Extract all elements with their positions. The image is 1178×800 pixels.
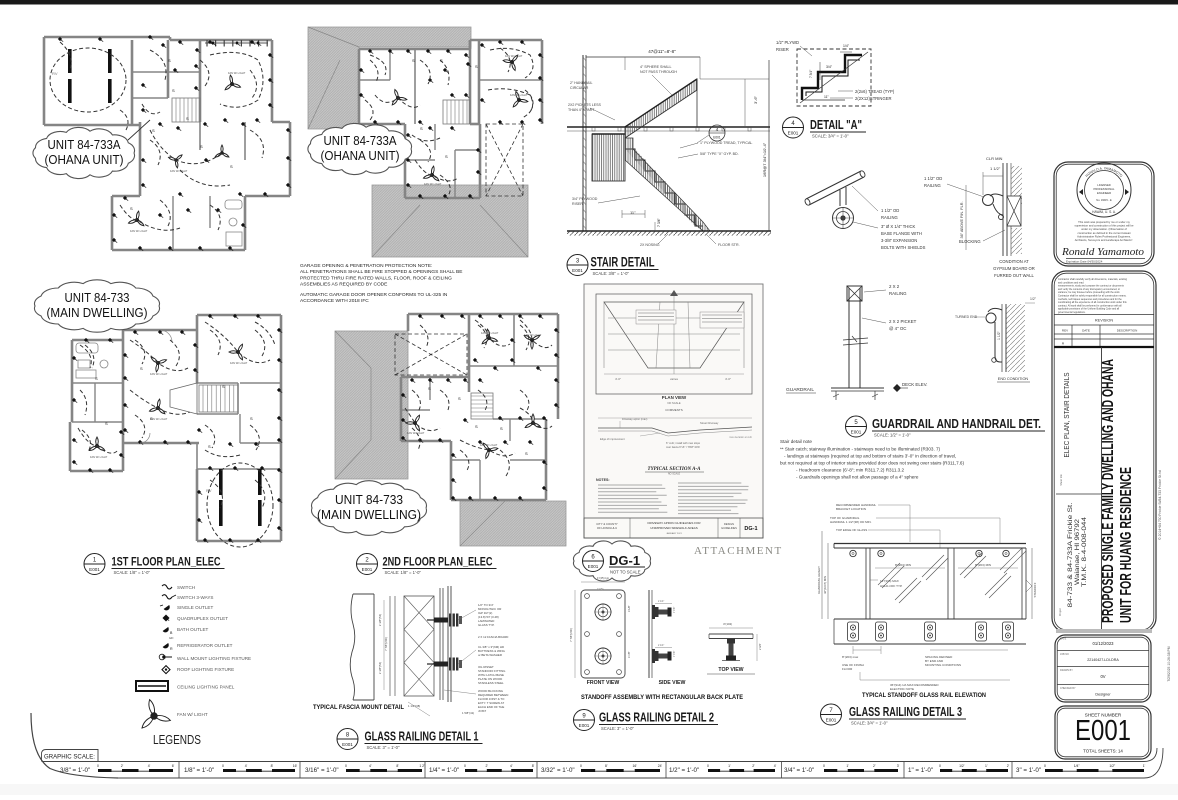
svg-text:1': 1' bbox=[985, 764, 988, 768]
svg-text:2" HANDRAIL: 2" HANDRAIL bbox=[570, 81, 592, 85]
svg-text:under my observation. (Obser: under my observation. (Observation of bbox=[1081, 227, 1127, 231]
svg-text:4': 4' bbox=[245, 764, 248, 768]
svg-text:Designer: Designer bbox=[1095, 693, 1111, 697]
svg-text:PROPOSED SINGLE FAMILY DWELLIN: PROPOSED SINGLE FAMILY DWELLING AND OHAN… bbox=[1100, 359, 1117, 623]
svg-text:0: 0 bbox=[222, 764, 224, 768]
svg-text:Sheet title: Sheet title bbox=[1059, 474, 1063, 486]
svg-text:S: S bbox=[172, 88, 175, 93]
svg-text:ASSEMBLIES AS REQUIRED BY CODE: ASSEMBLIES AS REQUIRED BY CODE bbox=[300, 282, 387, 288]
svg-text:UNIT 84-733A: UNIT 84-733A bbox=[324, 133, 397, 148]
svg-text:12"(305) MAX: 12"(305) MAX bbox=[880, 579, 899, 583]
svg-text:1/2": 1/2" bbox=[1030, 297, 1037, 301]
svg-text:2 1/8"(54): 2 1/8"(54) bbox=[378, 614, 382, 626]
svg-text:S: S bbox=[445, 154, 448, 159]
svg-text:GLASS RAILING DETAIL 2: GLASS RAILING DETAIL 2 bbox=[599, 711, 714, 725]
svg-text:DESIGN: DESIGN bbox=[724, 522, 734, 526]
svg-text:E001: E001 bbox=[342, 742, 353, 747]
svg-text:8': 8' bbox=[532, 764, 535, 768]
svg-text:R: R bbox=[170, 647, 173, 651]
svg-text:7 7/8": 7 7/8" bbox=[673, 607, 676, 613]
svg-text:S: S bbox=[420, 126, 423, 131]
svg-text:FAN W/ LIGHT: FAN W/ LIGHT bbox=[228, 71, 246, 75]
svg-text:AUTOMATIC GARAGE DOOR OPENER C: AUTOMATIC GARAGE DOOR OPENER CONFORMS TO… bbox=[300, 292, 448, 298]
svg-text:S: S bbox=[105, 421, 108, 426]
svg-text:0: 0 bbox=[939, 764, 941, 768]
svg-text:GLASS RAILING DETAIL 1: GLASS RAILING DETAIL 1 bbox=[365, 730, 479, 744]
svg-text:S: S bbox=[475, 424, 478, 429]
svg-text:ATTACHMENT: ATTACHMENT bbox=[694, 545, 783, 557]
svg-text:END CONDITION: END CONDITION bbox=[998, 377, 1029, 381]
svg-text:FAN W/ LIGHT: FAN W/ LIGHT bbox=[481, 331, 499, 335]
svg-text:1"(25) typ: 1"(25) typ bbox=[597, 576, 609, 580]
svg-text:DG-1: DG-1 bbox=[744, 526, 757, 532]
svg-text:E001: E001 bbox=[588, 564, 599, 569]
svg-text:FAN W/ LIGHT: FAN W/ LIGHT bbox=[407, 431, 425, 435]
svg-text:@ 4" OC: @ 4" OC bbox=[889, 326, 906, 331]
svg-text:GUIDELINES: GUIDELINES bbox=[721, 526, 737, 530]
svg-text:2 1/8"(54): 2 1/8"(54) bbox=[378, 662, 382, 674]
svg-text:GFI: GFI bbox=[169, 636, 174, 640]
svg-text:S: S bbox=[186, 116, 189, 121]
svg-text:CONDITION AT: CONDITION AT bbox=[999, 259, 1029, 264]
svg-text:3/32" = 1'-0": 3/32" = 1'-0" bbox=[541, 767, 575, 774]
svg-text:COMMENTS: COMMENTS bbox=[665, 408, 683, 412]
svg-text:E001: E001 bbox=[826, 718, 837, 723]
svg-text:SCALE: 1/8" = 1'-0": SCALE: 1/8" = 1'-0" bbox=[385, 570, 422, 575]
svg-text:S: S bbox=[95, 376, 98, 381]
svg-text:over fascia 6"x6" / "8X8" R/W: over fascia 6"x6" / "8X8" R/W bbox=[666, 445, 700, 449]
svg-text:4': 4' bbox=[774, 764, 777, 768]
svg-text:TURNED END: TURNED END bbox=[955, 315, 978, 319]
svg-text:47@11"=8'-8": 47@11"=8'-8" bbox=[648, 49, 676, 54]
svg-text:max deviation at curb: max deviation at curb bbox=[729, 436, 752, 439]
svg-text:FLOOR: FLOOR bbox=[842, 667, 853, 671]
svg-text:3 7/8": 3 7/8" bbox=[627, 651, 631, 658]
svg-text:- landings at stairways (requi: - landings at stairways (required at top… bbox=[784, 454, 956, 459]
svg-text:NO SCALE: NO SCALE bbox=[668, 473, 680, 476]
svg-text:1 1/2" OD: 1 1/2" OD bbox=[924, 176, 942, 181]
svg-text:2X NOSING: 2X NOSING bbox=[640, 243, 660, 247]
svg-text:2ND FLOOR PLAN_ELEC: 2ND FLOOR PLAN_ELEC bbox=[383, 555, 493, 569]
svg-text:3/4" = 1'-0": 3/4" = 1'-0" bbox=[784, 767, 814, 774]
svg-text:BRACKET LOCATION: BRACKET LOCATION bbox=[836, 507, 866, 511]
svg-text:- Guardrails openings shall no: - Guardrails openings shall not allow pa… bbox=[796, 475, 919, 480]
svg-text:** Stair catch; stairway illum: ** Stair catch; stairway illumination - … bbox=[780, 447, 941, 452]
svg-text:16R@7 3/4"=10'-4": 16R@7 3/4"=10'-4" bbox=[762, 142, 767, 177]
svg-text:S: S bbox=[250, 416, 253, 421]
svg-text:Stair detail note: Stair detail note bbox=[780, 439, 812, 444]
svg-text:3-3/8" EXPANSION: 3-3/8" EXPANSION bbox=[881, 238, 917, 243]
svg-text:3/16" = 1'-0": 3/16" = 1'-0" bbox=[305, 767, 339, 774]
svg-text:UNIT FOR HUANG RESIDENCE: UNIT FOR HUANG RESIDENCE bbox=[1118, 467, 1135, 623]
svg-text:Expiration Date 04/30/2024: Expiration Date 04/30/2024 bbox=[1066, 260, 1103, 264]
svg-text:2': 2' bbox=[485, 764, 488, 768]
svg-text:4': 4' bbox=[369, 764, 372, 768]
svg-text:LEGENDS: LEGENDS bbox=[153, 732, 201, 747]
svg-text:UNIT 84-733: UNIT 84-733 bbox=[65, 290, 130, 305]
svg-text:STAINLESS STEEL: STAINLESS STEEL bbox=[478, 681, 504, 685]
svg-text:E001: E001 bbox=[851, 430, 862, 435]
svg-text:CLR MIN: CLR MIN bbox=[986, 156, 1003, 161]
svg-text:GARAGE OPENING & PENETRATION P: GARAGE OPENING & PENETRATION PROTECTION … bbox=[300, 263, 432, 269]
svg-text:16': 16' bbox=[633, 764, 638, 768]
svg-text:8"(203) max: 8"(203) max bbox=[842, 655, 859, 659]
svg-text:S: S bbox=[525, 451, 528, 456]
svg-text:5/8" TYPE "X" GYP. BD.: 5/8" TYPE "X" GYP. BD. bbox=[700, 152, 739, 156]
svg-text:1 1/2" OD: 1 1/2" OD bbox=[881, 208, 899, 213]
svg-text:NOT PASS THROUGH: NOT PASS THROUGH bbox=[640, 70, 677, 74]
svg-text:8"(203) MIN: 8"(203) MIN bbox=[975, 563, 991, 567]
svg-text:E001: E001 bbox=[713, 136, 721, 140]
svg-text:RAILING: RAILING bbox=[889, 291, 907, 296]
svg-text:WALL MOUNT LIGHTING FIXTURE: WALL MOUNT LIGHTING FIXTURE bbox=[177, 656, 251, 661]
svg-text:8': 8' bbox=[396, 764, 399, 768]
svg-text:UNIMPROVED SIDEWALK AREAS: UNIMPROVED SIDEWALK AREAS bbox=[650, 526, 697, 530]
svg-text:GLASS RAILING DETAIL 3: GLASS RAILING DETAIL 3 bbox=[849, 705, 962, 719]
svg-text:S: S bbox=[200, 144, 203, 149]
svg-text:3': 3' bbox=[897, 764, 900, 768]
svg-text:STANDOFF: STANDOFF bbox=[1033, 582, 1037, 597]
svg-text:ENGINEER: ENGINEER bbox=[1097, 191, 1111, 195]
svg-text:FURRED OUT WALL: FURRED OUT WALL bbox=[994, 273, 1034, 278]
svg-text:SCALE: 3/8" = 1'-0": SCALE: 3/8" = 1'-0" bbox=[593, 271, 630, 276]
svg-text:DATE: DATE bbox=[1082, 329, 1090, 333]
svg-text:BLOCKING: BLOCKING bbox=[959, 239, 981, 244]
svg-text:UNIT 84-733: UNIT 84-733 bbox=[335, 492, 403, 507]
svg-text:S: S bbox=[168, 58, 171, 63]
svg-text:0: 0 bbox=[707, 764, 709, 768]
svg-text:Ronald Yamamoto: Ronald Yamamoto bbox=[1061, 247, 1144, 258]
svg-text:FAN W/ LIGHT: FAN W/ LIGHT bbox=[90, 455, 108, 459]
svg-text:DRAWN BY: DRAWN BY bbox=[1060, 669, 1073, 672]
svg-text:Project: Project bbox=[1058, 608, 1062, 616]
svg-text:E001: E001 bbox=[788, 131, 799, 136]
svg-text:TYPICAL SECTION A-A: TYPICAL SECTION A-A bbox=[648, 467, 702, 472]
svg-text:Street Driveway: Street Driveway bbox=[700, 421, 719, 425]
svg-text:1/2": 1/2" bbox=[1109, 764, 1116, 768]
svg-text:TOP VIEW: TOP VIEW bbox=[718, 667, 743, 673]
svg-text:2X2 PICKETS LESS: 2X2 PICKETS LESS bbox=[568, 103, 602, 107]
svg-text:2(2x6) TREAD (TYP): 2(2x6) TREAD (TYP) bbox=[855, 89, 895, 94]
svg-text:2': 2' bbox=[873, 764, 876, 768]
svg-text:SWITCH 3-WAYS: SWITCH 3-WAYS bbox=[177, 595, 214, 600]
svg-text:SCALE: 1/8" = 1'-0": SCALE: 1/8" = 1'-0" bbox=[114, 570, 151, 575]
svg-text:S: S bbox=[458, 396, 461, 401]
svg-text:RV: RV bbox=[52, 71, 58, 76]
svg-text:GLASS TYP.: GLASS TYP. bbox=[478, 623, 495, 627]
svg-text:REVISION: REVISION bbox=[1095, 319, 1113, 323]
svg-text:3" = 1'-0": 3" = 1'-0" bbox=[1016, 767, 1041, 774]
svg-text:NOTES:: NOTES: bbox=[596, 478, 610, 482]
svg-text:FRONT VIEW: FRONT VIEW bbox=[587, 680, 620, 686]
svg-text:JOB NO: JOB NO bbox=[1060, 653, 1069, 656]
svg-text:S: S bbox=[412, 58, 415, 63]
svg-text:STANDOFF ASSEMBLY WITH RECTANG: STANDOFF ASSEMBLY WITH RECTANGULAR BACK … bbox=[581, 694, 743, 701]
svg-text:1"(25): 1"(25) bbox=[597, 588, 604, 591]
svg-text:FAN W/ LIGHT: FAN W/ LIGHT bbox=[480, 443, 498, 447]
svg-text:GUARDRAIL: GUARDRAIL bbox=[786, 387, 814, 393]
svg-text:24': 24' bbox=[658, 764, 663, 768]
svg-text:0: 0 bbox=[97, 764, 99, 768]
svg-text:2': 2' bbox=[1007, 764, 1010, 768]
svg-text:4" SPHERE SHALL: 4" SPHERE SHALL bbox=[640, 65, 671, 69]
svg-text:FAN W/ LIGHT: FAN W/ LIGHT bbox=[150, 417, 168, 421]
svg-text:2 1/4": 2 1/4" bbox=[658, 600, 664, 603]
svg-text:QUADRUPLEX OUTLET: QUADRUPLEX OUTLET bbox=[177, 616, 228, 621]
svg-text:- Headroom clearance (6'-8"; m: - Headroom clearance (6'-8"; min R311.7.… bbox=[796, 468, 904, 473]
svg-text:DESCRIPTION: DESCRIPTION bbox=[1117, 329, 1138, 333]
svg-text:BATH OUTLET: BATH OUTLET bbox=[177, 627, 209, 632]
svg-text:16': 16' bbox=[293, 764, 298, 768]
svg-text:or BETA WASHER: or BETA WASHER bbox=[478, 653, 502, 657]
svg-text:8': 8' bbox=[605, 764, 608, 768]
svg-text:22140427-LDI-DRA: 22140427-LDI-DRA bbox=[1087, 658, 1119, 662]
svg-text:3/8" = 1'-0": 3/8" = 1'-0" bbox=[60, 767, 90, 774]
svg-text:0: 0 bbox=[823, 764, 825, 768]
svg-text:FAN W/ LIGHT: FAN W/ LIGHT bbox=[230, 361, 248, 365]
svg-text:0: 0 bbox=[580, 764, 582, 768]
svg-text:SINGLE OUTLET: SINGLE OUTLET bbox=[177, 605, 213, 610]
svg-text:1/4": 1/4" bbox=[843, 44, 850, 48]
svg-text:S: S bbox=[222, 384, 225, 389]
svg-text:0: 0 bbox=[1044, 764, 1046, 768]
svg-text:6': 6' bbox=[172, 764, 175, 768]
svg-text:RISER: RISER bbox=[776, 47, 789, 52]
svg-text:E001: E001 bbox=[579, 723, 590, 728]
svg-text:11": 11" bbox=[824, 95, 830, 99]
svg-text:FAN W/ LIGHT: FAN W/ LIGHT bbox=[524, 333, 542, 337]
svg-text:7 7/8"(200): 7 7/8"(200) bbox=[384, 637, 388, 651]
svg-text:E001: E001 bbox=[1075, 715, 1131, 747]
svg-text:TOTAL SHEETS: 14: TOTAL SHEETS: 14 bbox=[1083, 749, 1123, 754]
svg-text:2': 2' bbox=[121, 764, 124, 768]
svg-text:UNIT 84-733A: UNIT 84-733A bbox=[48, 137, 121, 152]
svg-text:1ST FLOOR PLAN_ELEC: 1ST FLOOR PLAN_ELEC bbox=[112, 555, 221, 569]
svg-text:S: S bbox=[440, 58, 443, 63]
svg-text:SCALE: 3/4" = 1'-0": SCALE: 3/4" = 1'-0" bbox=[851, 721, 888, 726]
svg-text:CEILING LIGHTING PANEL: CEILING LIGHTING PANEL bbox=[177, 685, 235, 690]
svg-text:JOIST: JOIST bbox=[478, 709, 486, 713]
svg-text:ALL PENETRATIONS SHALL BE FIRE: ALL PENETRATIONS SHALL BE FIRE STOPPED &… bbox=[300, 269, 462, 275]
svg-text:2 X 12 FASCIA BOARD: 2 X 12 FASCIA BOARD bbox=[478, 635, 508, 639]
svg-text:E001: E001 bbox=[572, 268, 583, 273]
svg-text:2': 2' bbox=[752, 764, 755, 768]
svg-text:FAN W/ LIGHT: FAN W/ LIGHT bbox=[424, 182, 442, 186]
svg-text:PROFESSIONAL: PROFESSIONAL bbox=[1094, 187, 1115, 191]
svg-text:FAN W/ LIGHT: FAN W/ LIGHT bbox=[170, 169, 188, 173]
svg-text:8"(203) MIN: 8"(203) MIN bbox=[895, 563, 911, 567]
svg-text:TYPICAL FASCIA MOUNT DETAIL: TYPICAL FASCIA MOUNT DETAIL bbox=[313, 704, 404, 711]
svg-text:SCALE: 1/2" = 1'-0": SCALE: 1/2" = 1'-0" bbox=[874, 433, 911, 438]
svg-text:1/2': 1/2' bbox=[959, 764, 965, 768]
svg-text:SWITCH: SWITCH bbox=[177, 585, 195, 590]
svg-text:1/2" = 1'-0": 1/2" = 1'-0" bbox=[669, 767, 699, 774]
svg-text:STAIR DETAIL: STAIR DETAIL bbox=[591, 255, 655, 270]
svg-text:1 1/2"(38): 1 1/2"(38) bbox=[408, 704, 420, 708]
svg-text:7 7/8": 7 7/8" bbox=[673, 651, 676, 657]
svg-text:OF HONOLULU: OF HONOLULU bbox=[597, 526, 617, 530]
svg-text:1 1/2": 1 1/2" bbox=[990, 166, 1001, 171]
svg-text:S: S bbox=[500, 426, 503, 431]
svg-text:SIDE VIEW: SIDE VIEW bbox=[659, 680, 686, 686]
svg-text:FAN W/ LIGHT: FAN W/ LIGHT bbox=[150, 372, 168, 376]
svg-text:TOP EDGE OF GLASS: TOP EDGE OF GLASS bbox=[836, 528, 867, 532]
svg-text:PLAN VIEW: PLAN VIEW bbox=[662, 395, 687, 400]
svg-text:E001: E001 bbox=[362, 567, 373, 572]
svg-text:8': 8' bbox=[271, 764, 274, 768]
svg-text:42"(1067) MIN: 42"(1067) MIN bbox=[823, 576, 827, 594]
svg-text:4'-0": 4'-0" bbox=[615, 377, 621, 381]
svg-text:MOUNTING CONDITIONS: MOUNTING CONDITIONS bbox=[925, 663, 961, 667]
svg-text:GUARDRAIL HEIGHT: GUARDRAIL HEIGHT bbox=[817, 566, 821, 594]
svg-text:7/29/2025 10:26:38 PM: 7/29/2025 10:26:38 PM bbox=[1167, 646, 1171, 681]
svg-text:3" Ø X 1/4" THICK: 3" Ø X 1/4" THICK bbox=[881, 224, 916, 229]
svg-text:CHECKED BY: CHECKED BY bbox=[1060, 687, 1076, 690]
svg-text:DG-1: DG-1 bbox=[609, 553, 640, 568]
svg-text:RAILING: RAILING bbox=[881, 215, 898, 220]
svg-text:supervision and construction o: supervision and construction of this pro… bbox=[1074, 224, 1134, 228]
svg-text:DRIVEWAY APRON GUIDELINES FOR: DRIVEWAY APRON GUIDELINES FOR bbox=[647, 521, 701, 525]
svg-text:DECK ELEV.: DECK ELEV. bbox=[902, 382, 927, 387]
svg-text:S: S bbox=[140, 366, 143, 371]
svg-text:1': 1' bbox=[728, 764, 731, 768]
svg-text:REFRIGERATOR OUTLET: REFRIGERATOR OUTLET bbox=[177, 643, 233, 648]
svg-text:(OHANA UNIT): (OHANA UNIT) bbox=[321, 148, 400, 163]
svg-text:Edge of improvement: Edge of improvement bbox=[600, 437, 625, 441]
svg-text:ELECTRIC NOTE: ELECTRIC NOTE bbox=[890, 687, 914, 691]
svg-text:E001: E001 bbox=[89, 567, 100, 572]
svg-text:construction as defined in the: construction as defined in the current H… bbox=[1078, 231, 1131, 235]
svg-text:Waianae, HI 96792: Waianae, HI 96792 bbox=[1075, 518, 1081, 585]
svg-text:TYPICAL STANDOFF GLASS RAIL EL: TYPICAL STANDOFF GLASS RAIL ELEVATION bbox=[862, 692, 986, 699]
svg-text:This work was prepared by me o: This work was prepared by me or under my bbox=[1078, 220, 1130, 224]
svg-text:S: S bbox=[230, 164, 233, 169]
svg-text:SCALE: 3/4" = 1'-0": SCALE: 3/4" = 1'-0" bbox=[812, 134, 849, 139]
svg-text:HOLD-OFF TYP.: HOLD-OFF TYP. bbox=[880, 584, 903, 588]
svg-text:4'-0": 4'-0" bbox=[725, 377, 731, 381]
svg-text:36" ABOVE FIN. FLR.: 36" ABOVE FIN. FLR. bbox=[960, 201, 964, 238]
svg-text:1': 1' bbox=[846, 764, 849, 768]
svg-text:4"(102): 4"(102) bbox=[723, 622, 732, 626]
svg-text:HANDRAIL 1 1/2"(38) OD MIN.: HANDRAIL 1 1/2"(38) OD MIN. bbox=[830, 520, 872, 524]
svg-text:3/4": 3/4" bbox=[826, 65, 833, 69]
svg-text:3'-6": 3'-6" bbox=[753, 95, 758, 104]
svg-text:3/4" PLYWOOD: 3/4" PLYWOOD bbox=[572, 197, 598, 201]
svg-text:S: S bbox=[208, 444, 211, 449]
svg-text:varies: varies bbox=[670, 377, 679, 381]
svg-text:NO SCALE: NO SCALE bbox=[667, 401, 680, 405]
svg-text:1/4" = 1'-0": 1/4" = 1'-0" bbox=[429, 767, 459, 774]
svg-text:6" curb; install with max slop: 6" curb; install with max slope bbox=[666, 441, 701, 445]
svg-text:DATE: DATE bbox=[1060, 638, 1067, 641]
svg-text:1" PLYWOOD TREAD, TYPICAL: 1" PLYWOOD TREAD, TYPICAL bbox=[700, 141, 752, 145]
svg-text:2 3/4": 2 3/4" bbox=[758, 643, 762, 650]
svg-text:7 7/8"(200): 7 7/8"(200) bbox=[569, 628, 573, 642]
svg-text:1/4": 1/4" bbox=[1074, 764, 1081, 768]
svg-text:FLOOR STR.: FLOOR STR. bbox=[718, 243, 740, 247]
svg-text:REV: REV bbox=[1062, 329, 1068, 333]
svg-text:ACCORDANCE WITH 2018 IFC: ACCORDANCE WITH 2018 IFC bbox=[300, 298, 369, 304]
svg-text:S: S bbox=[130, 206, 133, 211]
svg-text:SCALE: 3" = 1'-0": SCALE: 3" = 1'-0" bbox=[601, 726, 634, 731]
svg-text:ROOF LIGHTING FIXTURE: ROOF LIGHTING FIXTURE bbox=[177, 667, 234, 672]
svg-text:Architects, Surveyors and Land: Architects, Surveyors and Landscape Arch… bbox=[1075, 238, 1134, 242]
svg-text:FAN W/ LIGHT: FAN W/ LIGHT bbox=[177, 712, 208, 717]
svg-text:FAN W/ LIGHT: FAN W/ LIGHT bbox=[510, 93, 528, 97]
svg-text:2 1/4": 2 1/4" bbox=[658, 644, 664, 647]
svg-text:SCALE: 3" = 1'-0": SCALE: 3" = 1'-0" bbox=[367, 745, 400, 750]
svg-text:BOLTS WITH SHIELDS: BOLTS WITH SHIELDS bbox=[881, 245, 926, 250]
svg-text:governmental regulations.: governmental regulations. bbox=[1058, 311, 1086, 314]
svg-text:GYPSUM BOARD OR: GYPSUM BOARD OR bbox=[993, 266, 1035, 271]
svg-text:1 1/2": 1 1/2" bbox=[997, 330, 1001, 340]
svg-text:JANUARY 2021: JANUARY 2021 bbox=[666, 532, 682, 535]
svg-text:LICENSED: LICENSED bbox=[1097, 183, 1111, 187]
svg-text:No. 16615 - E: No. 16615 - E bbox=[1096, 199, 1112, 202]
svg-text:1" = 1'-0": 1" = 1'-0" bbox=[908, 767, 933, 774]
svg-text:ELEC PLAN, STAIR DETAILS: ELEC PLAN, STAIR DETAILS bbox=[1064, 372, 1071, 457]
svg-text:CIRCULAR: CIRCULAR bbox=[570, 86, 589, 90]
svg-text:1': 1' bbox=[1143, 764, 1146, 768]
svg-text:GRAPHIC SCALE:: GRAPHIC SCALE: bbox=[44, 754, 95, 761]
svg-text:1/2" PLYWD: 1/2" PLYWD bbox=[776, 40, 799, 45]
svg-text:S: S bbox=[428, 386, 431, 391]
svg-text:2 X 2: 2 X 2 bbox=[889, 284, 900, 289]
svg-text:RISER: RISER bbox=[572, 202, 583, 206]
svg-text:Administrative Rules Profess: Administrative Rules Professional Engine… bbox=[1077, 234, 1131, 238]
svg-text:PROTECTED THRU FIRE RATED WALL: PROTECTED THRU FIRE RATED WALLS, FLOOR, … bbox=[300, 275, 452, 281]
svg-text:(OHANA UNIT): (OHANA UNIT) bbox=[45, 152, 124, 167]
svg-text:7 3/4": 7 3/4" bbox=[809, 70, 813, 78]
svg-text:4': 4' bbox=[510, 764, 513, 768]
svg-text:HAWAII, U. S. A.: HAWAII, U. S. A. bbox=[1092, 210, 1116, 214]
svg-text:FAN W/ LIGHT: FAN W/ LIGHT bbox=[130, 229, 148, 233]
svg-text:Driveway apron (max): Driveway apron (max) bbox=[622, 417, 648, 421]
svg-text:2(2X12)STRINGER: 2(2X12)STRINGER bbox=[855, 96, 892, 101]
svg-text:NOT TO SCALE: NOT TO SCALE bbox=[610, 570, 641, 575]
svg-text:S: S bbox=[475, 64, 478, 69]
svg-text:1/8" = 1'-0": 1/8" = 1'-0" bbox=[184, 767, 214, 774]
svg-text:7 3/4": 7 3/4" bbox=[657, 217, 661, 227]
svg-text:84-733 & 84-733A Frickie St.: 84-733 & 84-733A Frickie St. bbox=[1068, 502, 1074, 607]
svg-text:BASE FLANGE WITH: BASE FLANGE WITH bbox=[881, 231, 922, 236]
svg-text:4': 4' bbox=[148, 764, 151, 768]
svg-text:0: 0 bbox=[464, 764, 466, 768]
svg-text:01/12/2023: 01/12/2023 bbox=[1093, 641, 1115, 646]
svg-text:0: 0 bbox=[345, 764, 347, 768]
svg-text:but not required at top of int: but not required at top of interior stai… bbox=[780, 461, 964, 466]
svg-text:RAILING: RAILING bbox=[924, 183, 941, 188]
svg-text:1 2': 1 2' bbox=[419, 764, 425, 768]
svg-text:3 1/8": 3 1/8" bbox=[627, 605, 631, 612]
svg-text:DETAIL "A": DETAIL "A" bbox=[810, 118, 862, 132]
svg-text:0V: 0V bbox=[1100, 674, 1105, 679]
svg-text:GUARDRAIL AND HANDRAIL DET.: GUARDRAIL AND HANDRAIL DET. bbox=[872, 417, 1041, 431]
svg-text:(MAIN DWELLING): (MAIN DWELLING) bbox=[47, 305, 148, 320]
svg-text:2 X 2 PICKET: 2 X 2 PICKET bbox=[889, 319, 917, 324]
svg-text:© 2014+84 730 Frickie St/84-73: © 2014+84 730 Frickie St/84-733 Frickie … bbox=[1158, 470, 1162, 540]
svg-text:S: S bbox=[152, 128, 155, 133]
svg-text:T.M.K. 8-4-008-044: T.M.K. 8-4-008-044 bbox=[1082, 516, 1088, 587]
svg-text:(MAIN DWELLING): (MAIN DWELLING) bbox=[317, 507, 421, 522]
svg-text:1 5/8"(41): 1 5/8"(41) bbox=[462, 711, 474, 715]
